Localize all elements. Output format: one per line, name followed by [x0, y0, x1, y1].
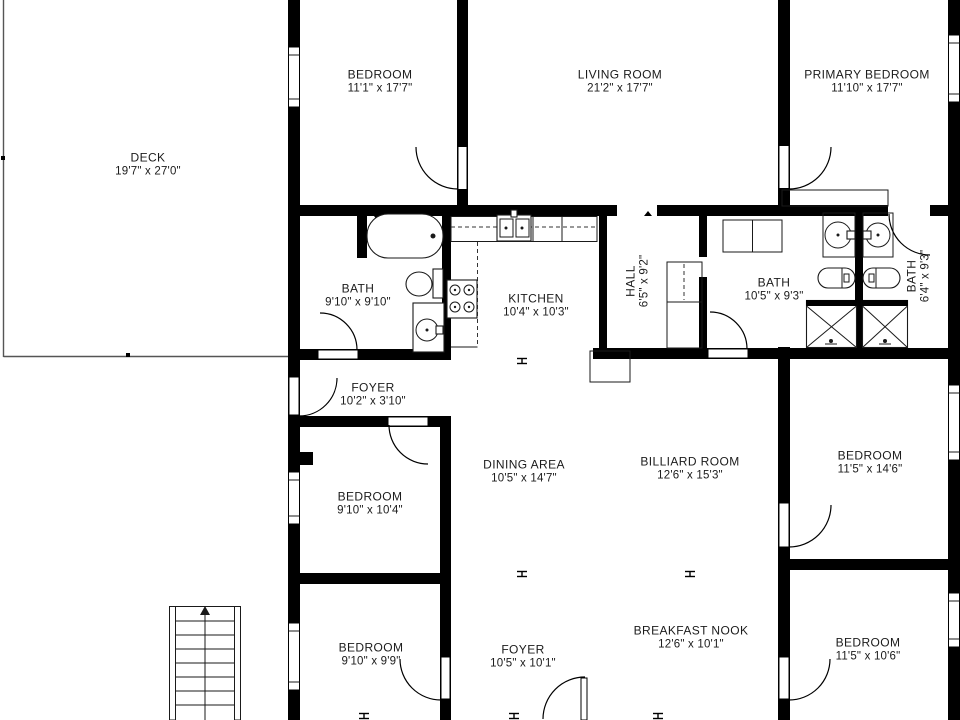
room-name: BATH [905, 250, 919, 302]
shower-icon [806, 300, 857, 348]
room-label-foyer-upper: FOYER 10'2" x 3'10" [340, 381, 406, 410]
hall-closet [667, 262, 702, 348]
room-label-bedroom-top: BEDROOM 11'1" x 17'7" [348, 68, 413, 97]
door [543, 677, 587, 720]
room-dims: 6'5" x 9'2" [638, 255, 653, 307]
room-dims: 10'5" x 10'1" [490, 657, 556, 672]
door [289, 377, 337, 416]
room-dims: 12'6" x 15'3" [640, 469, 739, 484]
kitchen-sink-icon [497, 210, 531, 241]
room-label-bath-small: BATH 6'4" x 9'3" [905, 250, 934, 302]
room-name: BATH [325, 282, 391, 296]
room-dims: 10'5" x 14'7" [483, 472, 565, 487]
toilet-icon [863, 268, 900, 288]
door [779, 503, 831, 547]
door [400, 657, 450, 700]
stairs [170, 606, 241, 720]
window [949, 593, 960, 647]
room-dims: 12'6" x 10'1" [634, 638, 749, 653]
window [289, 47, 300, 107]
room-label-hall: HALL 6'5" x 9'2" [624, 255, 653, 307]
floor-plan-canvas [0, 0, 960, 720]
room-name: FOYER [340, 381, 406, 395]
room-name: PRIMARY BEDROOM [804, 68, 930, 82]
door [318, 313, 358, 359]
room-name: DECK [115, 151, 181, 165]
room-label-primary-bedroom: PRIMARY BEDROOM 11'10" x 17'7" [804, 68, 930, 97]
dimension-tick [1, 156, 5, 160]
room-dims: 10'5" x 9'3" [744, 290, 803, 305]
room-label-bedroom-mid-left: BEDROOM 9'10" x 10'4" [337, 490, 403, 519]
room-dims: 19'7" x 27'0" [115, 165, 181, 180]
window [949, 385, 960, 460]
room-dims: 11'5" x 10'6" [836, 650, 901, 665]
door [779, 657, 830, 700]
wall-stub [300, 452, 313, 465]
room-name: HALL [624, 255, 638, 307]
room-dims: 9'10" x 9'9" [339, 655, 404, 670]
primary-closet [782, 190, 888, 206]
toilet-icon [818, 268, 855, 288]
vanity-sink-icon [823, 213, 855, 257]
windows [289, 35, 960, 690]
room-label-bedroom-bottom-right: BEDROOM 11'5" x 10'6" [836, 636, 901, 665]
room-label-bedroom-mid-right: BEDROOM 11'5" x 14'6" [838, 449, 903, 478]
room-name: KITCHEN [503, 292, 569, 306]
room-label-bath-main: BATH 9'10" x 9'10" [325, 282, 391, 311]
room-dims: 6'4" x 9'3" [919, 250, 934, 302]
floor-plan: DECK 19'7" x 27'0" BEDROOM 11'1" x 17'7"… [0, 0, 960, 720]
room-label-dining-area: DINING AREA 10'5" x 14'7" [483, 458, 565, 487]
room-dims: 11'5" x 14'6" [838, 463, 903, 478]
room-name: BEDROOM [348, 68, 413, 82]
bathtub-icon [367, 214, 443, 258]
door [779, 146, 831, 190]
room-name: BEDROOM [836, 636, 901, 650]
room-dims: 10'2" x 3'10" [340, 395, 406, 410]
room-dims: 9'10" x 10'4" [337, 504, 403, 519]
room-label-breakfast-nook: BREAKFAST NOOK 12'6" x 10'1" [634, 624, 749, 653]
cabinet-icon [723, 220, 782, 252]
room-name: BREAKFAST NOOK [634, 624, 749, 638]
shower-icon [862, 300, 908, 348]
room-name: BATH [744, 276, 803, 290]
room-label-bedroom-bottom-left: BEDROOM 9'10" x 9'9" [339, 641, 404, 670]
room-name: BEDROOM [339, 641, 404, 655]
room-dims: 21'2" x 17'7" [578, 82, 662, 97]
toilet-icon [406, 269, 443, 298]
room-label-kitchen: KITCHEN 10'4" x 10'3" [503, 292, 569, 321]
room-label-bath-center: BATH 10'5" x 9'3" [744, 276, 803, 305]
room-name: LIVING ROOM [578, 68, 662, 82]
window [289, 472, 300, 524]
room-label-foyer-lower: FOYER 10'5" x 10'1" [490, 643, 556, 672]
walls [288, 0, 960, 720]
room-dims: 10'4" x 10'3" [503, 306, 569, 321]
room-label-living-room: LIVING ROOM 21'2" x 17'7" [578, 68, 662, 97]
room-label-billiard-room: BILLIARD ROOM 12'6" x 15'3" [640, 455, 739, 484]
window [289, 623, 300, 690]
room-dims: 11'10" x 17'7" [804, 82, 930, 97]
bathroom-sink-icon [413, 303, 444, 352]
stove-icon [447, 280, 477, 318]
room-name: DINING AREA [483, 458, 565, 472]
room-name: BILLIARD ROOM [640, 455, 739, 469]
door [708, 312, 748, 358]
room-dims: 9'10" x 9'10" [325, 296, 391, 311]
room-name: BEDROOM [337, 490, 403, 504]
vanity-sink-icon [863, 213, 893, 257]
room-dims: 11'1" x 17'7" [348, 82, 413, 97]
door [388, 417, 428, 464]
stairs-up-arrow-icon [200, 606, 210, 615]
room-label-deck: DECK 19'7" x 27'0" [115, 151, 181, 180]
dimension-tick [126, 353, 130, 357]
kitchen-fixtures [447, 210, 597, 347]
room-name: FOYER [490, 643, 556, 657]
room-name: BEDROOM [838, 449, 903, 463]
door [416, 147, 467, 190]
window [949, 35, 960, 102]
